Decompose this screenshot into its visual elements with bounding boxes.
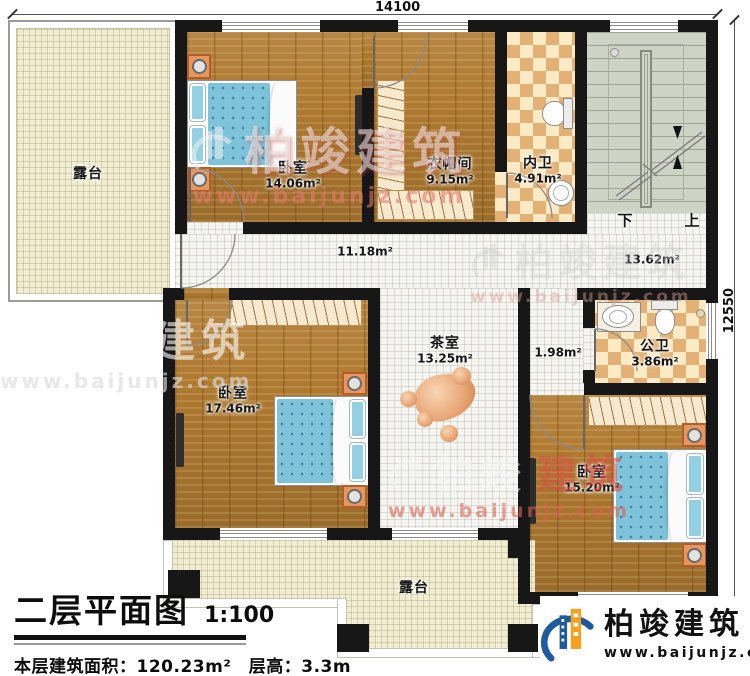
cloakroom-label: 衣帽间9.15m² [426, 157, 473, 186]
stair-up-label: 上 [684, 213, 699, 230]
decor-stone [417, 412, 433, 427]
floor-info: 本层建筑面积：120.23m² 层高：3.3m [14, 652, 354, 676]
faucet-icon [696, 309, 705, 318]
vestibule-floor [530, 288, 583, 383]
brand-logo: 柏竣建筑 www.baijunjz.com [540, 596, 750, 672]
dimension-line-top [12, 14, 718, 15]
window [222, 20, 320, 32]
nightstand [342, 372, 367, 395]
window [706, 303, 718, 359]
bedroom3-label: 卧室15.20m² [564, 465, 620, 494]
nightstand [342, 485, 367, 508]
bed [187, 80, 297, 168]
watermark-logo-icon [1, 314, 41, 360]
brand-logo-icon [540, 602, 596, 666]
brand-url: www.baijunjz.com [604, 645, 750, 661]
terrace-pillar [508, 624, 538, 652]
decor-stone [452, 367, 471, 385]
nightstand [682, 543, 707, 567]
nightstand [187, 54, 211, 79]
window [220, 528, 327, 540]
inner-bath-label: 内卫4.91m² [514, 156, 561, 185]
closet-rack [588, 396, 708, 426]
brand-name: 柏竣建筑 [604, 607, 750, 643]
stair-hall-label: 13.62m² [624, 253, 680, 266]
window [610, 20, 678, 32]
bedroom2-label: 卧室17.46m² [205, 386, 261, 415]
toilet-tank [563, 98, 573, 129]
closet-rack [377, 80, 405, 194]
terrace-bottom-label: 露台 [399, 581, 429, 597]
window [398, 20, 468, 32]
decor-stone [440, 425, 458, 442]
toilet-icon [542, 101, 565, 126]
tea-room-label: 茶室13.25m² [417, 336, 473, 365]
bedroom1-label: 卧室14.06m² [265, 161, 321, 190]
stair-down-label: 下 [617, 213, 632, 230]
title-block: 二层平面图 1:100 本层建筑面积：120.23m² 层高：3.3m [14, 584, 354, 676]
page-title: 二层平面图 [14, 591, 189, 630]
toilet-icon [655, 309, 675, 335]
dimension-top: 14100 [375, 0, 420, 15]
nightstand [187, 167, 211, 192]
vestibule-label: 1.98m² [534, 346, 581, 359]
closet-rack [377, 190, 474, 220]
corridor-label: 11.18m² [337, 245, 393, 258]
stair-rail [640, 50, 652, 208]
nightstand [682, 423, 707, 447]
window [392, 528, 478, 540]
sink-icon [602, 305, 634, 328]
floor-plan: 露台 卧室14.06m² 衣帽间9.15m² 内卫4.91m² 下 上 13.6… [0, 0, 750, 676]
title-underline [14, 635, 246, 640]
decor-stone [400, 391, 417, 407]
bed [613, 449, 709, 543]
terrace-top-label: 露台 [73, 167, 103, 183]
terrace-top [8, 20, 178, 302]
tv [176, 413, 184, 467]
dimension-right: 12550 [722, 288, 737, 333]
bed [274, 396, 369, 486]
plan-scale: 1:100 [204, 603, 274, 628]
faucet-icon [610, 48, 619, 57]
public-bath-label: 公卫3.86m² [631, 339, 678, 368]
